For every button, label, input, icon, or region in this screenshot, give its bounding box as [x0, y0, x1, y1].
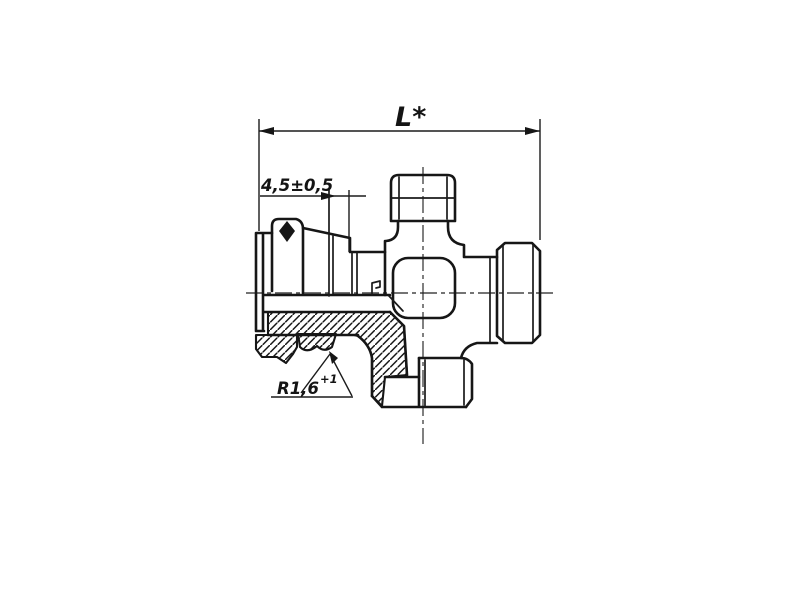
overall-length-label: L*: [395, 102, 426, 133]
arrowhead-left: [259, 127, 274, 135]
sleeve-top-edge: [303, 228, 385, 252]
radius-arrowhead: [329, 351, 338, 364]
technical-drawing: L* 4,5±0,5 R1,6 +1: [0, 0, 800, 600]
radius-label: R1,6: [277, 379, 319, 398]
center-boss-outline: [393, 258, 455, 318]
gap-label: 4,5±0,5: [260, 176, 333, 195]
top-neck-right: [448, 221, 497, 257]
sleeve-face-lines: [352, 252, 357, 294]
right-port: [461, 243, 540, 358]
centerlines: [246, 167, 556, 444]
drawing-page: L* 4,5±0,5 R1,6 +1: [0, 0, 800, 600]
top-port: [385, 175, 497, 295]
gap-dimension: 4,5±0,5: [260, 176, 366, 296]
lower-right-shoulder: [461, 343, 497, 358]
radius-tolerance-label: +1: [320, 372, 338, 386]
top-neck-left: [385, 221, 398, 295]
arrowhead-right: [525, 127, 540, 135]
nut-lower-section: [256, 335, 297, 363]
bottom-port-thread-lines: [425, 360, 464, 406]
seal-diamond: [279, 221, 295, 242]
bore-flare-edge: [389, 296, 403, 311]
sleeve-ring-section: [298, 334, 336, 350]
